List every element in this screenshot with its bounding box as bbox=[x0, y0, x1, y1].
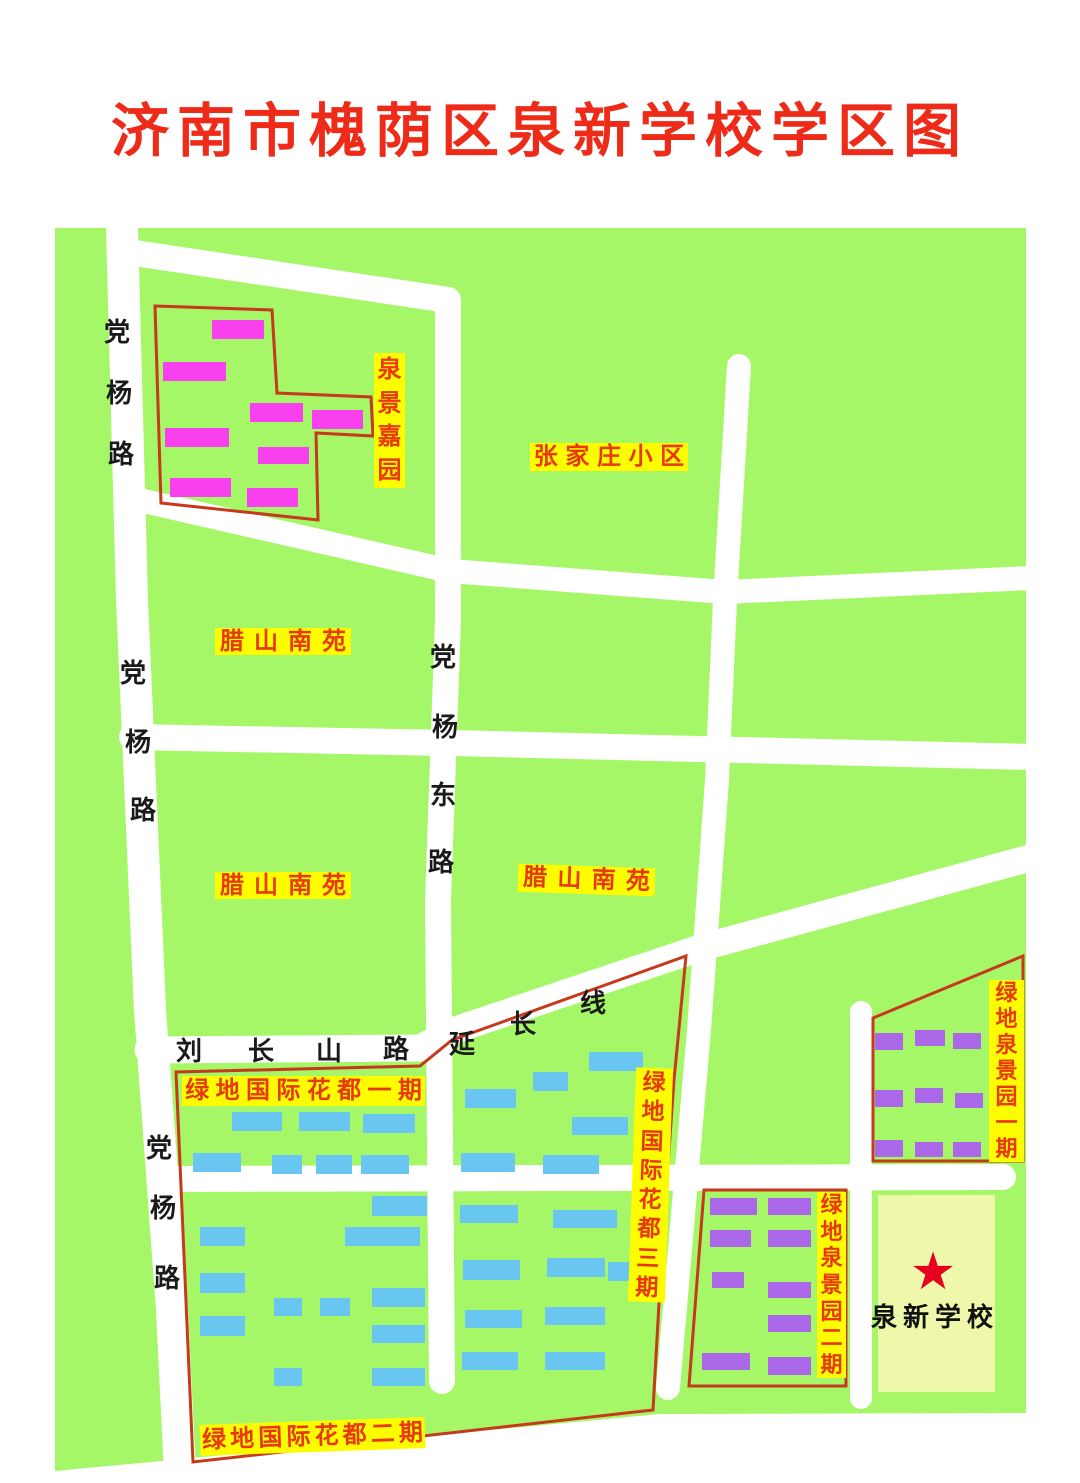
road-label-liuchangshan-road-extension: 延 bbox=[447, 1028, 477, 1060]
district-map: 张家庄小区腊山南苑腊山南苑腊山南苑绿地国际花都一期绿地国际花都二期绿地国际花都三… bbox=[0, 0, 1080, 1483]
area-label-lvdi-guoji-huadu-3: 绿地国际花都三期 bbox=[628, 1067, 673, 1302]
road-label-dangyang-east-road: 东 bbox=[428, 779, 458, 811]
road-label-liuchangshan-road-extension: 长 bbox=[508, 1008, 538, 1040]
area-label-char: 苑 bbox=[322, 874, 346, 898]
area-label-char: 地 bbox=[641, 1100, 665, 1124]
area-label-quanjing-jiayuan: 泉景嘉园 bbox=[374, 353, 405, 488]
lvdi-guoji-huadu-building bbox=[316, 1155, 352, 1174]
area-label-char: 景 bbox=[995, 1060, 1017, 1082]
lvdi-quanjingyuan-1-building bbox=[875, 1033, 903, 1050]
road-label-liuchangshan-road-extension: 山 bbox=[314, 1035, 344, 1067]
area-label-lvdi-quanjingyuan-1: 绿地泉景园一期 bbox=[989, 980, 1024, 1162]
lvdi-guoji-huadu-building bbox=[274, 1298, 302, 1316]
area-label-char: 园 bbox=[378, 459, 402, 483]
area-label-char: 山 bbox=[254, 630, 278, 654]
lvdi-guoji-huadu-building bbox=[463, 1260, 520, 1280]
area-label-char: 期 bbox=[635, 1275, 659, 1299]
area-label-char: 绿 bbox=[202, 1428, 227, 1453]
area-label-char: 山 bbox=[254, 874, 278, 898]
lvdi-quanjingyuan-2-building bbox=[710, 1230, 751, 1247]
lvdi-guoji-huadu-building bbox=[363, 1114, 415, 1133]
lvdi-guoji-huadu-building bbox=[345, 1227, 420, 1246]
school-star-icon: ★ bbox=[903, 1242, 963, 1302]
area-label-lashan-nanyuan-3: 腊山南苑 bbox=[518, 864, 656, 897]
area-label-char: 花 bbox=[307, 1079, 331, 1103]
road-label-dangyang-east-road: 党 bbox=[428, 641, 458, 673]
area-label-char: 绿 bbox=[820, 1194, 842, 1216]
area-label-lvdi-guoji-huadu-2: 绿地国际花都二期 bbox=[200, 1417, 426, 1456]
lvdi-guoji-huadu-building bbox=[372, 1325, 425, 1343]
lvdi-quanjingyuan-2-building bbox=[768, 1198, 811, 1215]
area-label-char: 绿 bbox=[995, 982, 1017, 1004]
lvdi-guoji-huadu-building bbox=[200, 1227, 245, 1246]
area-label-char: 南 bbox=[591, 868, 616, 893]
road-label-dangyang-east-road: 杨 bbox=[430, 711, 460, 743]
lvdi-guoji-huadu-building bbox=[589, 1052, 643, 1071]
lvdi-quanjingyuan-2-building bbox=[768, 1315, 811, 1332]
quanjing-jiayuan-building bbox=[250, 403, 303, 422]
area-label-char: 国 bbox=[246, 1079, 270, 1103]
road-label-dangyang-road-1: 党 bbox=[102, 316, 132, 348]
area-label-char: 山 bbox=[557, 867, 582, 892]
area-label-char: 期 bbox=[995, 1138, 1017, 1160]
area-label-char: 都 bbox=[637, 1217, 661, 1241]
area-label-char: 期 bbox=[820, 1354, 842, 1376]
lvdi-guoji-huadu-building bbox=[232, 1112, 282, 1131]
lvdi-guoji-huadu-building bbox=[461, 1153, 515, 1172]
area-label-char: 地 bbox=[820, 1221, 842, 1243]
page: 济南市槐荫区泉新学校学区图 bbox=[0, 0, 1080, 1483]
road-label-dangyang-road-3: 杨 bbox=[148, 1192, 178, 1224]
area-label-char: 南 bbox=[288, 630, 312, 654]
area-label-char: 地 bbox=[995, 1008, 1017, 1030]
lvdi-guoji-huadu-building bbox=[465, 1089, 516, 1108]
area-label-char: 二 bbox=[820, 1327, 842, 1349]
lvdi-guoji-huadu-building bbox=[545, 1307, 605, 1325]
lvdi-guoji-huadu-building bbox=[465, 1310, 522, 1328]
road-label-dangyang-road-1: 杨 bbox=[104, 377, 134, 409]
lvdi-guoji-huadu-building bbox=[193, 1153, 241, 1172]
area-label-char: 腊 bbox=[523, 866, 548, 891]
area-label-lashan-nanyuan-2: 腊山南苑 bbox=[215, 872, 351, 899]
area-label-char: 际 bbox=[639, 1158, 663, 1182]
area-label-char: 国 bbox=[640, 1129, 664, 1153]
lvdi-quanjingyuan-1-building bbox=[915, 1030, 945, 1046]
lvdi-quanjingyuan-1-building bbox=[875, 1140, 903, 1157]
quanjing-jiayuan-building bbox=[258, 447, 309, 464]
lvdi-guoji-huadu-building bbox=[200, 1316, 245, 1336]
road-label-liuchangshan-road-extension: 刘 bbox=[174, 1035, 204, 1067]
lvdi-quanjingyuan-2-building bbox=[712, 1272, 744, 1288]
area-label-char: 期 bbox=[398, 1421, 423, 1446]
area-label-char: 苑 bbox=[625, 869, 650, 894]
lvdi-guoji-huadu-building bbox=[272, 1155, 302, 1174]
road-label-liuchangshan-road-extension: 线 bbox=[578, 987, 608, 1019]
road-label-liuchangshan-road-extension: 长 bbox=[246, 1035, 276, 1067]
lvdi-quanjingyuan-2-building bbox=[768, 1357, 811, 1375]
area-label-char: 一 bbox=[367, 1079, 391, 1103]
area-label-char: 都 bbox=[337, 1079, 361, 1103]
area-label-lashan-nanyuan-1: 腊山南苑 bbox=[215, 628, 351, 655]
area-label-char: 区 bbox=[660, 445, 684, 469]
area-label-char: 花 bbox=[638, 1188, 662, 1212]
area-label-char: 地 bbox=[230, 1427, 255, 1452]
lvdi-quanjingyuan-2-building bbox=[768, 1282, 811, 1298]
lvdi-quanjingyuan-1-building bbox=[915, 1142, 943, 1157]
area-label-char: 南 bbox=[288, 874, 312, 898]
area-label-char: 三 bbox=[636, 1246, 660, 1270]
area-label-char: 园 bbox=[995, 1086, 1017, 1108]
road-label-dangyang-road-1: 路 bbox=[106, 438, 136, 470]
lvdi-guoji-huadu-building bbox=[572, 1117, 628, 1135]
road-label-dangyang-road-2: 路 bbox=[128, 794, 158, 826]
area-label-char: 泉 bbox=[995, 1034, 1017, 1056]
area-label-char: 家 bbox=[565, 445, 589, 469]
lvdi-guoji-huadu-building bbox=[543, 1155, 599, 1174]
lvdi-guoji-huadu-building bbox=[545, 1352, 605, 1370]
area-label-char: 小 bbox=[629, 445, 653, 469]
lvdi-guoji-huadu-building bbox=[274, 1368, 302, 1386]
area-label-char: 期 bbox=[398, 1079, 422, 1103]
area-label-char: 景 bbox=[378, 392, 402, 416]
lvdi-guoji-huadu-building bbox=[200, 1273, 245, 1293]
area-label-char: 一 bbox=[995, 1112, 1017, 1134]
road-label-dangyang-road-3: 党 bbox=[144, 1132, 174, 1164]
area-label-char: 庄 bbox=[597, 445, 621, 469]
lvdi-quanjingyuan-1-building bbox=[953, 1142, 981, 1157]
lvdi-guoji-huadu-building bbox=[460, 1205, 518, 1223]
area-label-char: 都 bbox=[342, 1423, 367, 1448]
lvdi-guoji-huadu-building bbox=[372, 1288, 425, 1307]
area-label-char: 园 bbox=[820, 1301, 842, 1323]
area-label-lvdi-quanjingyuan-2: 绿地泉景园二期 bbox=[817, 1192, 846, 1378]
area-label-char: 景 bbox=[820, 1274, 842, 1296]
lvdi-guoji-huadu-building bbox=[533, 1072, 568, 1091]
lvdi-quanjingyuan-2-building bbox=[702, 1353, 750, 1370]
area-label-char: 嘉 bbox=[378, 425, 402, 449]
area-label-char: 绿 bbox=[185, 1079, 209, 1103]
road-label-dangyang-road-3: 路 bbox=[152, 1262, 182, 1294]
school-name-label: 泉新学校 bbox=[850, 1297, 1020, 1334]
lvdi-guoji-huadu-building bbox=[372, 1196, 427, 1216]
road-label-dangyang-road-2: 党 bbox=[118, 657, 148, 689]
lvdi-quanjingyuan-1-building bbox=[915, 1088, 943, 1103]
lvdi-guoji-huadu-building bbox=[553, 1210, 617, 1228]
lvdi-guoji-huadu-building bbox=[462, 1352, 518, 1370]
road-label-dangyang-east-road: 路 bbox=[426, 846, 456, 878]
area-label-zhangjiazhuang-xiaoqu: 张家庄小区 bbox=[530, 443, 688, 471]
area-label-char: 际 bbox=[286, 1425, 311, 1450]
lvdi-quanjingyuan-1-building bbox=[953, 1033, 981, 1049]
area-label-char: 花 bbox=[314, 1424, 339, 1449]
area-label-lvdi-guoji-huadu-1: 绿地国际花都一期 bbox=[182, 1076, 425, 1106]
area-label-char: 地 bbox=[216, 1079, 240, 1103]
area-label-char: 腊 bbox=[220, 874, 244, 898]
area-label-char: 二 bbox=[370, 1422, 395, 1447]
quanjing-jiayuan-building bbox=[212, 320, 264, 339]
area-label-char: 国 bbox=[258, 1426, 283, 1451]
quanjing-jiayuan-building bbox=[165, 428, 229, 447]
quanjing-jiayuan-building bbox=[247, 488, 298, 507]
lvdi-guoji-huadu-building bbox=[372, 1368, 425, 1386]
area-label-char: 泉 bbox=[378, 358, 402, 382]
area-label-char: 泉 bbox=[820, 1247, 842, 1269]
lvdi-quanjingyuan-2-building bbox=[710, 1198, 757, 1215]
lvdi-quanjingyuan-1-building bbox=[875, 1090, 903, 1107]
quanjing-jiayuan-building bbox=[163, 362, 226, 381]
area-label-char: 腊 bbox=[220, 630, 244, 654]
road-label-liuchangshan-road-extension: 路 bbox=[381, 1033, 411, 1065]
area-label-char: 际 bbox=[276, 1079, 300, 1103]
area-label-char: 绿 bbox=[642, 1071, 666, 1095]
area-label-char: 张 bbox=[534, 445, 558, 469]
map-overlay: 张家庄小区腊山南苑腊山南苑腊山南苑绿地国际花都一期绿地国际花都二期绿地国际花都三… bbox=[0, 0, 1080, 1483]
lvdi-guoji-huadu-building bbox=[299, 1112, 350, 1131]
lvdi-guoji-huadu-building bbox=[320, 1298, 350, 1316]
lvdi-guoji-huadu-building bbox=[547, 1258, 605, 1277]
area-label-char: 苑 bbox=[322, 630, 346, 654]
lvdi-quanjingyuan-1-building bbox=[955, 1093, 983, 1108]
lvdi-guoji-huadu-building bbox=[361, 1155, 409, 1174]
lvdi-quanjingyuan-2-building bbox=[768, 1230, 811, 1247]
quanjing-jiayuan-building bbox=[170, 478, 231, 497]
quanjing-jiayuan-building bbox=[312, 410, 363, 429]
road-label-dangyang-road-2: 杨 bbox=[123, 726, 153, 758]
